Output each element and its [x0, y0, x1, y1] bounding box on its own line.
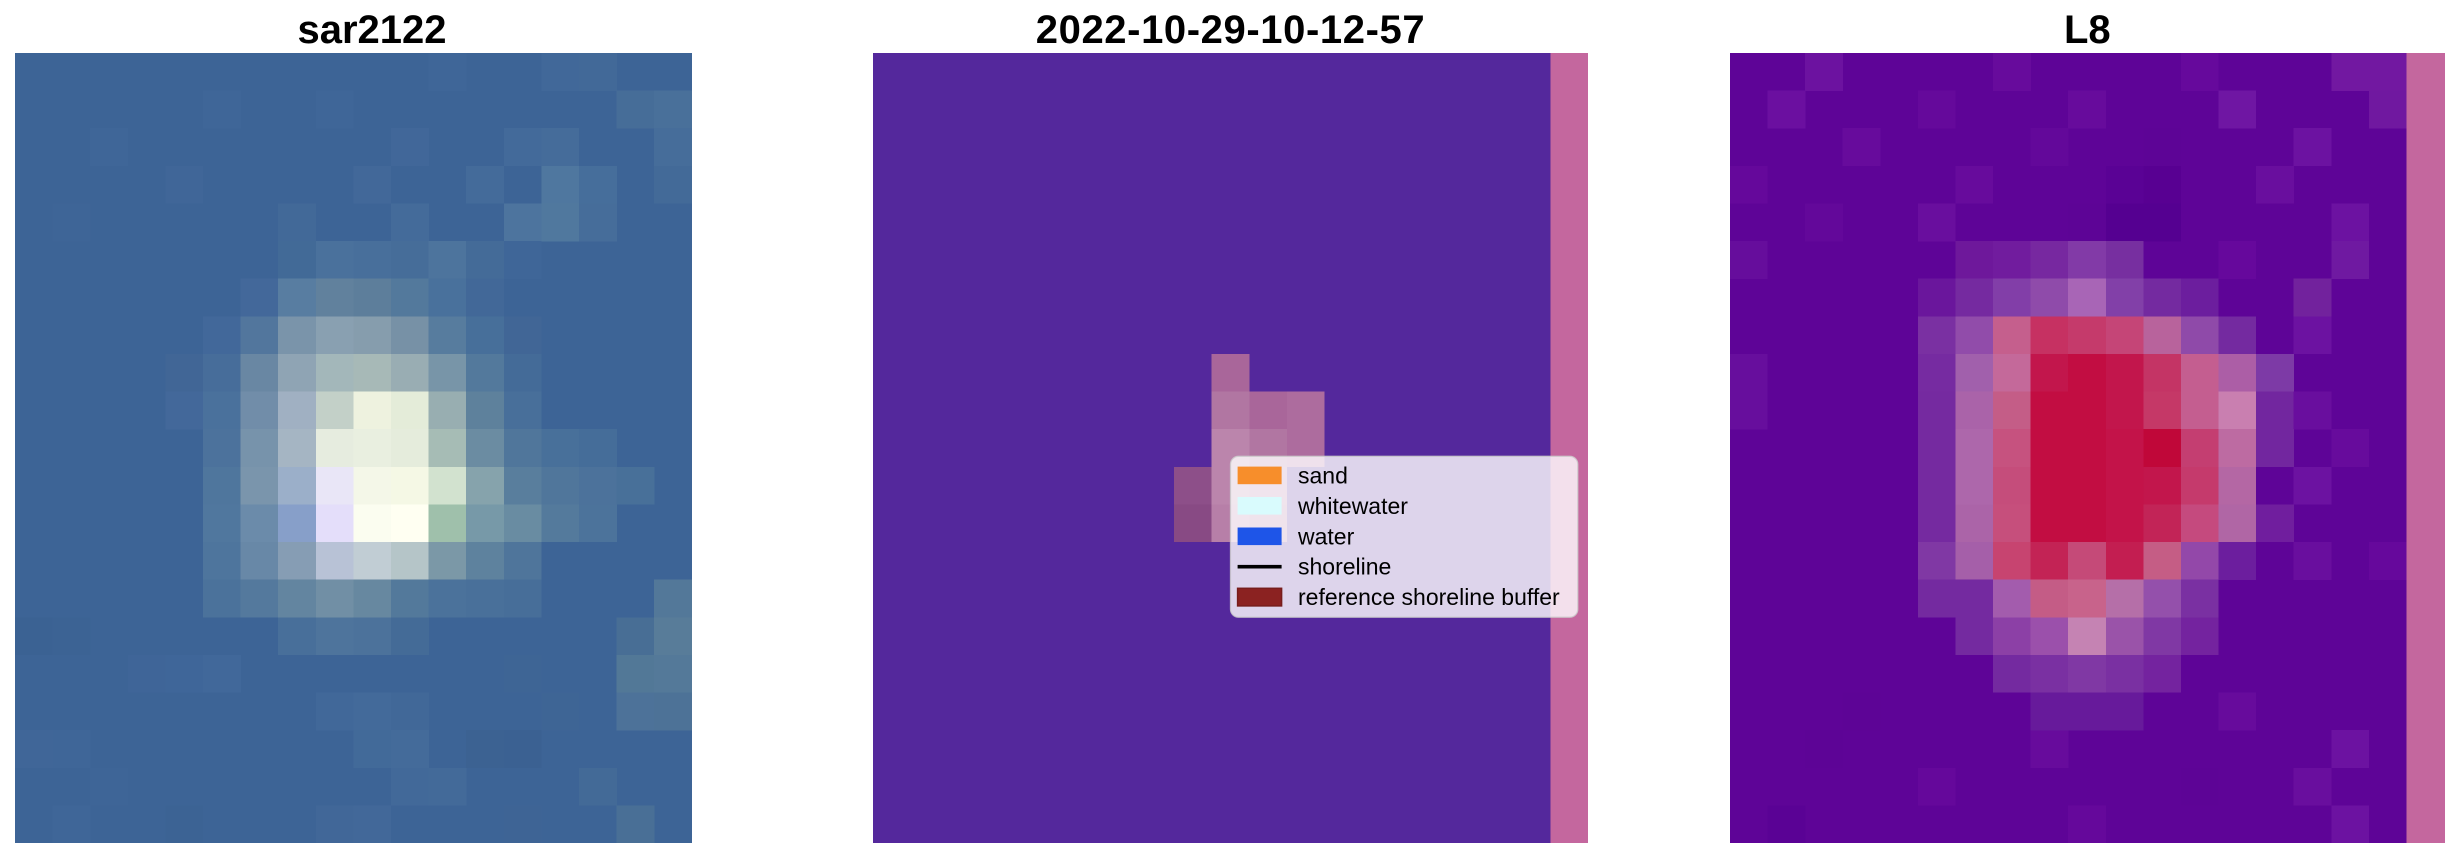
svg-text:sand: sand	[1298, 462, 1348, 488]
svg-text:whitewater: whitewater	[1297, 493, 1408, 519]
svg-text:reference shoreline buffer: reference shoreline buffer	[1298, 584, 1560, 610]
svg-text:2022-10-29-10-12-57: 2022-10-29-10-12-57	[1036, 8, 1425, 52]
svg-text:sar2122: sar2122	[297, 8, 446, 52]
svg-text:L8: L8	[2064, 8, 2111, 52]
svg-text:shoreline: shoreline	[1298, 554, 1391, 580]
svg-text:water: water	[1297, 523, 1355, 549]
